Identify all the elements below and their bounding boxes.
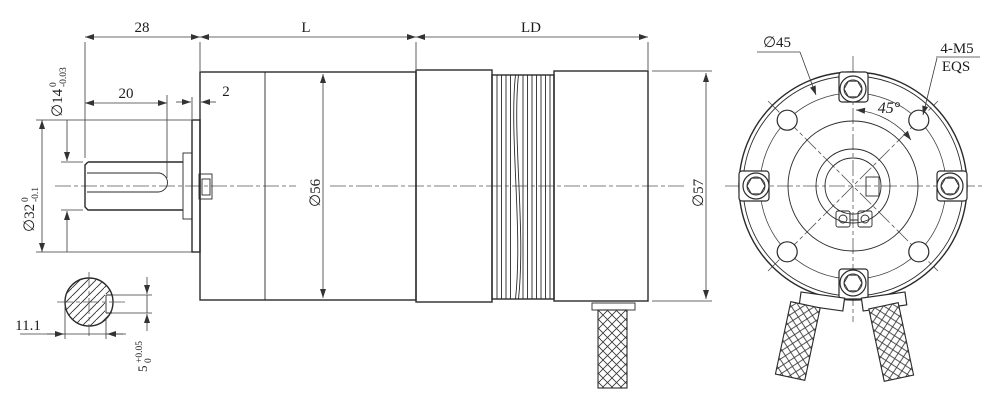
side-dimensions: 28 L LD 20 2 ∅14 0 -0.03 ∅32 0 -0.1 ∅ bbox=[16, 20, 712, 301]
dim-shaft-dia-label: ∅14 0 -0.03 bbox=[44, 67, 69, 117]
side-view bbox=[55, 70, 684, 388]
dim-angle-label: 45° bbox=[878, 100, 901, 117]
front-cable-right bbox=[869, 303, 914, 382]
dim-bolt-circle-label: ∅45 bbox=[763, 35, 791, 51]
m5-hole-sw bbox=[777, 242, 797, 262]
dim-across-flat-label: 11.1 bbox=[15, 318, 41, 334]
retaining-clip bbox=[836, 211, 872, 227]
dim-thread-spec-label: 4-M5 bbox=[940, 41, 973, 57]
front-view bbox=[725, 56, 983, 381]
dim-hub-dia-label: ∅32 0 -0.1 bbox=[16, 187, 41, 232]
shaft-keyway-slot bbox=[87, 173, 168, 192]
dim-keyway-width-label: 5 +0.05 0 bbox=[130, 338, 154, 372]
m5-hole-se bbox=[909, 242, 929, 262]
dim-L-label: L bbox=[301, 20, 310, 36]
shaft-section-view: 11.1 5 +0.05 0 bbox=[15, 272, 154, 372]
dim-thread-note-label: EQS bbox=[942, 59, 970, 75]
pilot-boss-inner bbox=[202, 179, 210, 195]
dim-motor-dia-label: ∅57 bbox=[691, 178, 707, 207]
dim-20-label: 20 bbox=[119, 86, 134, 102]
assembly-screw-top bbox=[840, 76, 866, 102]
dim-2-label: 2 bbox=[222, 84, 230, 100]
m5-hole-ne bbox=[909, 110, 929, 130]
m5-hole-nw bbox=[777, 110, 797, 130]
dim-LD-label: LD bbox=[521, 20, 541, 36]
assembly-screw-bottom bbox=[840, 270, 866, 296]
front-keyway bbox=[866, 177, 879, 196]
front-cable-left bbox=[775, 302, 820, 381]
motor-rib-section bbox=[492, 75, 554, 299]
assembly-screw-right bbox=[937, 173, 963, 199]
side-cable bbox=[592, 303, 635, 388]
assembly-screw-left bbox=[743, 173, 769, 199]
technical-drawing-page: 28 L LD 20 2 ∅14 0 -0.03 ∅32 0 -0.1 ∅ bbox=[0, 0, 1000, 402]
dim-28-label: 28 bbox=[135, 20, 150, 36]
gear-motor-drawing: 28 L LD 20 2 ∅14 0 -0.03 ∅32 0 -0.1 ∅ bbox=[0, 0, 1000, 402]
dim-gearbox-dia-label: ∅56 bbox=[308, 178, 324, 207]
motor-body bbox=[416, 70, 648, 302]
